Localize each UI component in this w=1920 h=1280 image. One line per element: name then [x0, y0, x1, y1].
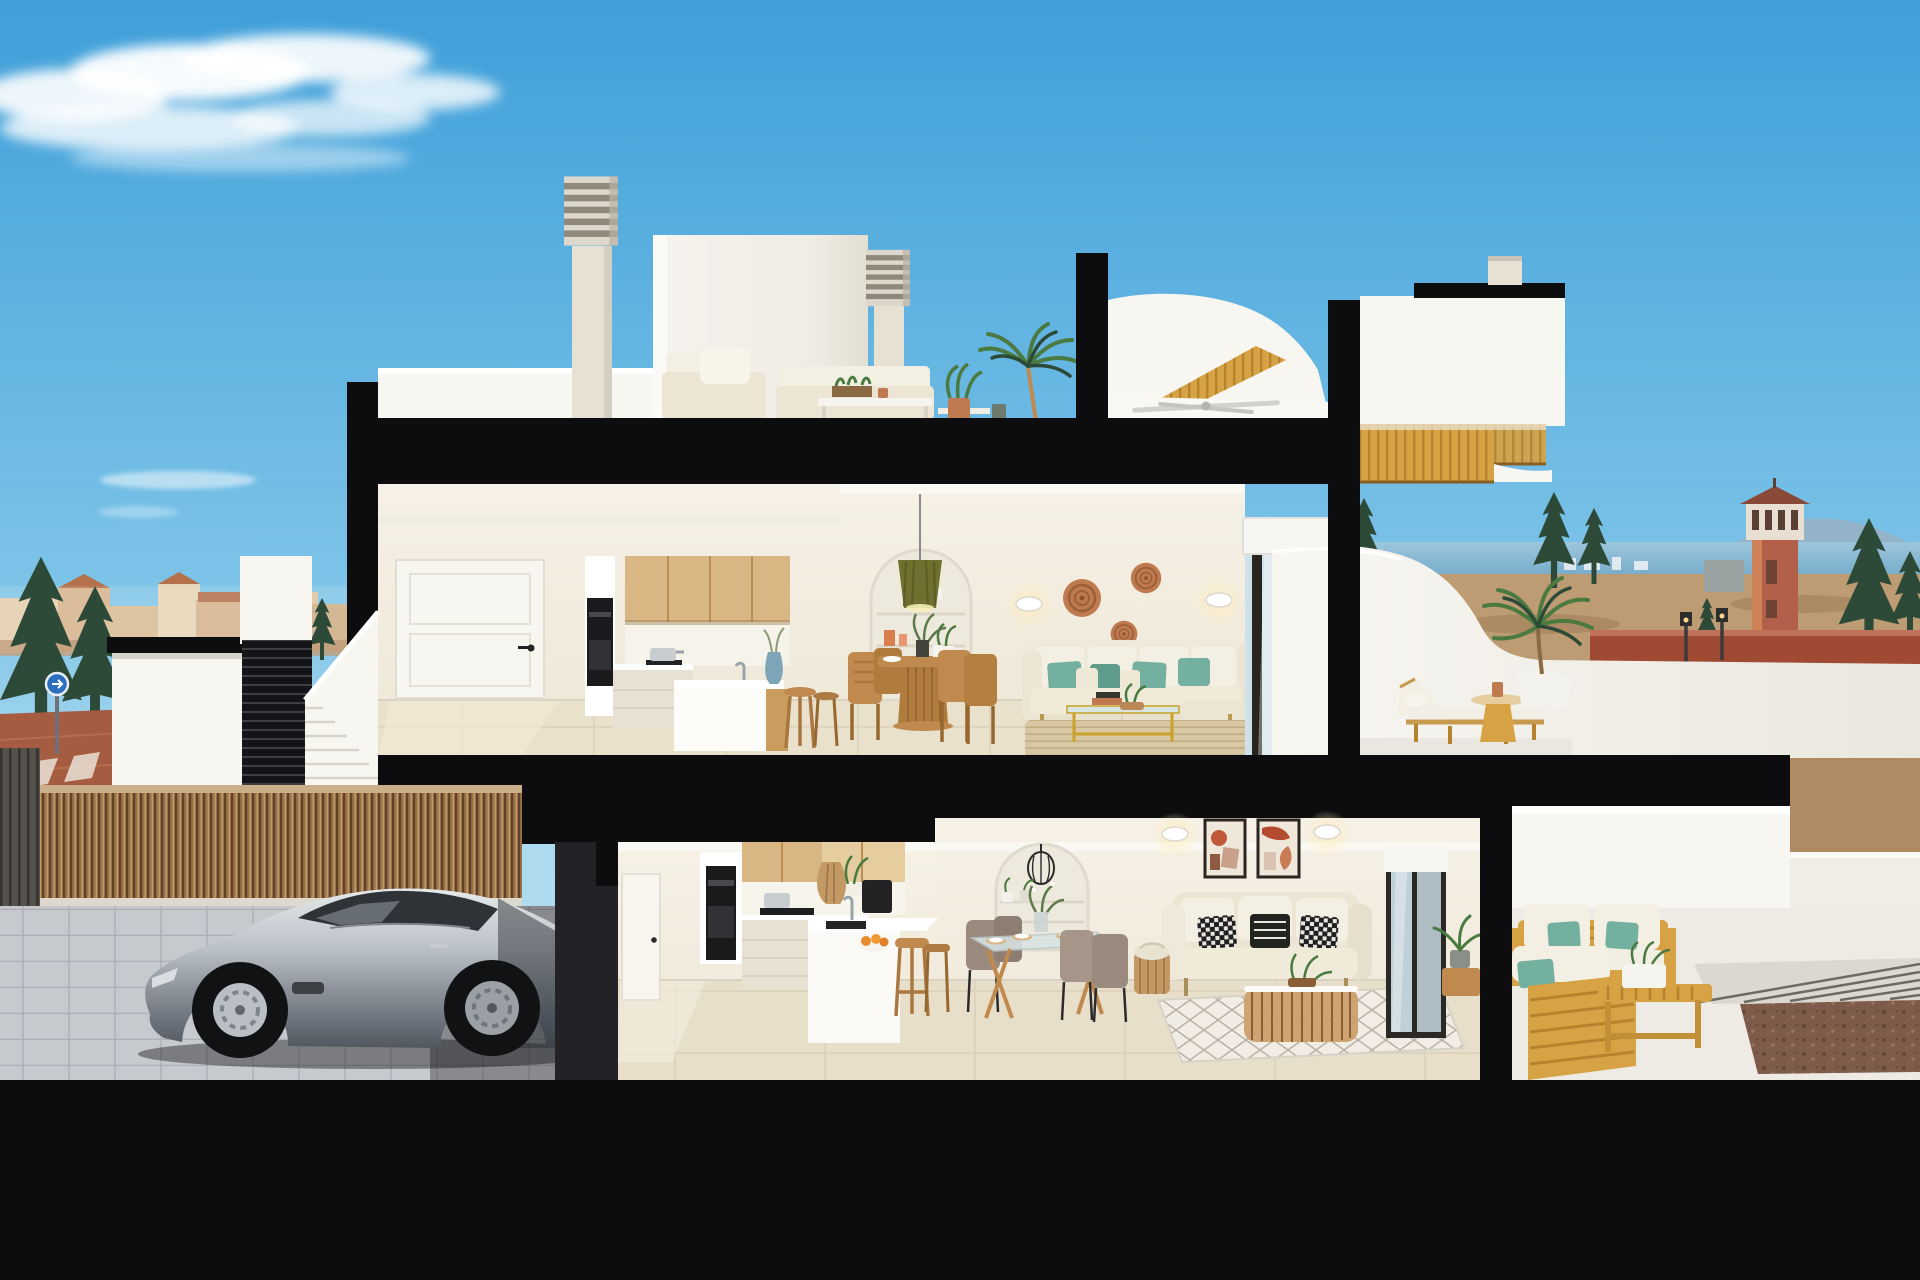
rooftop-cut-column-right [1076, 253, 1108, 420]
render-stage: Cross-section render of a two-storey coa… [0, 0, 1920, 1280]
golden-pergola-overhang [1358, 424, 1552, 482]
garden-wall [107, 637, 255, 788]
bottom-slab-cut [0, 1080, 1920, 1280]
tan-strip-right [1790, 758, 1920, 854]
understair-louver-door [242, 640, 312, 790]
rooftop-parapet-left [378, 368, 668, 420]
ground-right-cut-column [1480, 806, 1512, 1082]
gravel-bed [1740, 1000, 1920, 1074]
car-door-handle [430, 944, 448, 948]
car-rear-wheel [444, 960, 540, 1056]
villa-cross-section: Cross-section render of a two-storey coa… [0, 0, 1920, 1280]
ground-floor-interior [618, 810, 1486, 1082]
chimney-main [564, 176, 618, 420]
grey-slat-gate [0, 748, 40, 910]
car-front-wheel [192, 962, 288, 1058]
upper-right-cut-column [1328, 300, 1360, 758]
distant-grey-building [1704, 560, 1744, 592]
bench-planter [1622, 964, 1666, 988]
sink [826, 921, 866, 929]
upper-floor-interior [378, 484, 1330, 758]
side-basket-throw [1134, 944, 1170, 995]
brick-wall-cap [1590, 630, 1920, 636]
coffee-machine [862, 880, 892, 913]
upper-terrace-floor [1360, 738, 1572, 755]
upper-wood-cabinets [625, 556, 790, 622]
ground-sliding-door [1384, 846, 1448, 1038]
upper-interior-door [396, 560, 544, 698]
cooktop-ground [760, 908, 814, 915]
parapet-coping [378, 368, 668, 374]
ground-side-door [622, 874, 660, 1000]
terrace-back-wall [1512, 806, 1790, 908]
